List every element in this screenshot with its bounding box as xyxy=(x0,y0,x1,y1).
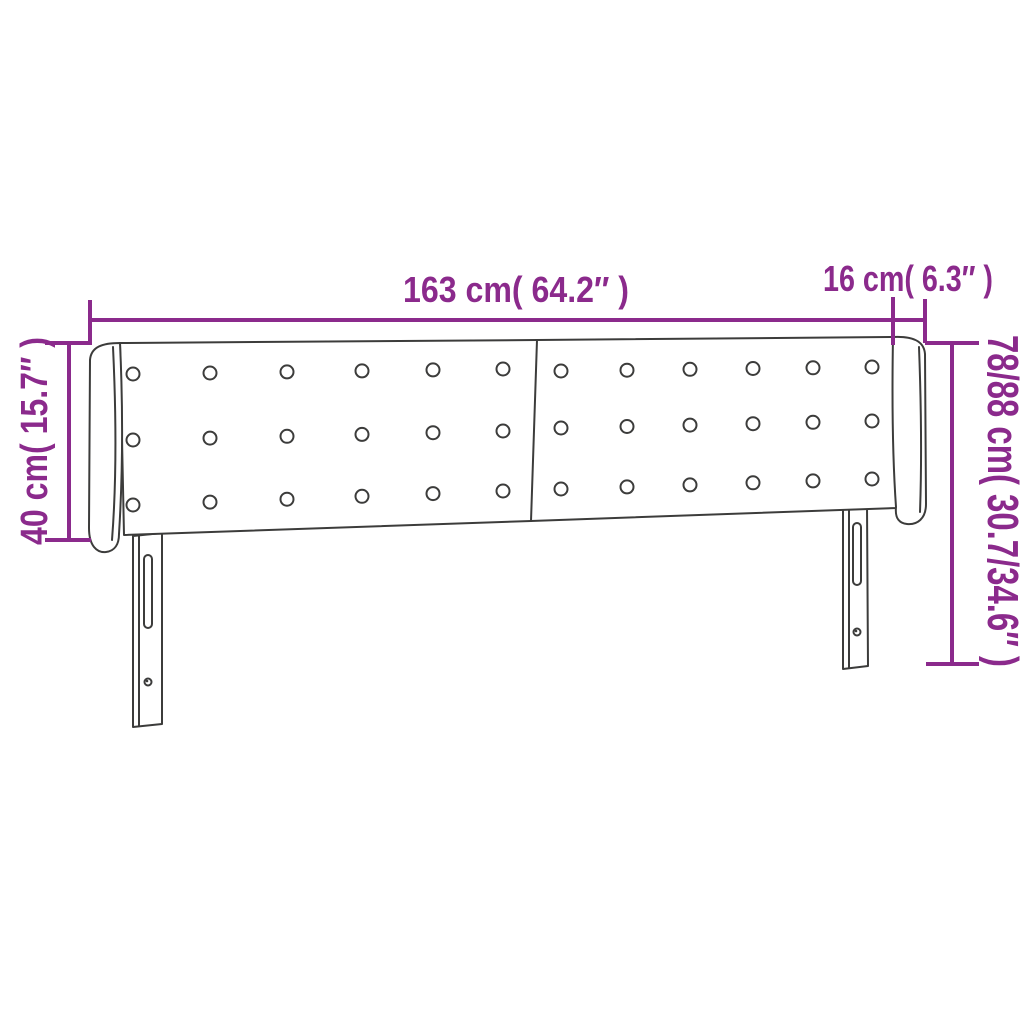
headboard-right-wing xyxy=(892,337,926,524)
tufting-button xyxy=(747,417,760,430)
product-diagram: 163 cm( 64.2″ ) 16 cm( 6.3″ ) 40 cm( 15.… xyxy=(0,0,1024,1024)
tufting-button xyxy=(427,363,440,376)
tufting-button xyxy=(427,487,440,500)
tufting-button xyxy=(427,426,440,439)
tufting-button xyxy=(684,478,697,491)
tufting-button xyxy=(497,363,510,376)
diagram-canvas: 163 cm( 64.2″ ) 16 cm( 6.3″ ) 40 cm( 15.… xyxy=(0,0,1024,1024)
tufting-button xyxy=(866,473,879,486)
tufting-button xyxy=(127,499,140,512)
tufting-button xyxy=(621,480,634,493)
tufting-button xyxy=(356,364,369,377)
tufting-button xyxy=(866,361,879,374)
tufting-button xyxy=(747,476,760,489)
dimension-label-width-main: 163 cm( 64.2″ ) xyxy=(403,269,629,310)
tufting-button xyxy=(127,368,140,381)
headboard-left-wing xyxy=(89,343,122,552)
tufting-button xyxy=(621,364,634,377)
tufting-button xyxy=(281,493,294,506)
tufting-button xyxy=(807,416,820,429)
headboard-left-leg xyxy=(133,533,162,727)
tufting-button xyxy=(204,496,217,509)
tufting-button xyxy=(281,365,294,378)
tufting-button xyxy=(684,419,697,432)
tufting-button xyxy=(356,428,369,441)
dimension-height-total xyxy=(925,343,979,664)
tufting-button xyxy=(127,434,140,447)
tufting-button xyxy=(555,483,568,496)
tufting-button xyxy=(204,432,217,445)
tufting-button xyxy=(866,415,879,428)
tufting-button xyxy=(747,362,760,375)
left-leg-slot xyxy=(144,555,152,628)
tufting-button xyxy=(555,365,568,378)
tufting-button xyxy=(807,361,820,374)
tufting-button xyxy=(684,363,697,376)
tufting-button xyxy=(497,425,510,438)
headboard-right-leg xyxy=(843,505,868,669)
tufting-button xyxy=(555,422,568,435)
left-leg-bolt-dot xyxy=(146,680,149,683)
right-leg-bolt-dot xyxy=(855,630,858,633)
headboard-drawing xyxy=(89,337,926,727)
dimension-label-height-total: 78/88 cm( 30.7/34.6″ ) xyxy=(978,335,1024,667)
tufting-button xyxy=(497,485,510,498)
tufting-button xyxy=(204,367,217,380)
tufting-button xyxy=(281,430,294,443)
right-leg-slot xyxy=(853,523,861,585)
tufting-button xyxy=(621,420,634,433)
tufting-button xyxy=(807,474,820,487)
dimension-label-width-wing: 16 cm( 6.3″ ) xyxy=(823,258,993,299)
dimension-label-height-side: 40 cm( 15.7″ ) xyxy=(14,337,56,545)
tufting-button xyxy=(356,490,369,503)
